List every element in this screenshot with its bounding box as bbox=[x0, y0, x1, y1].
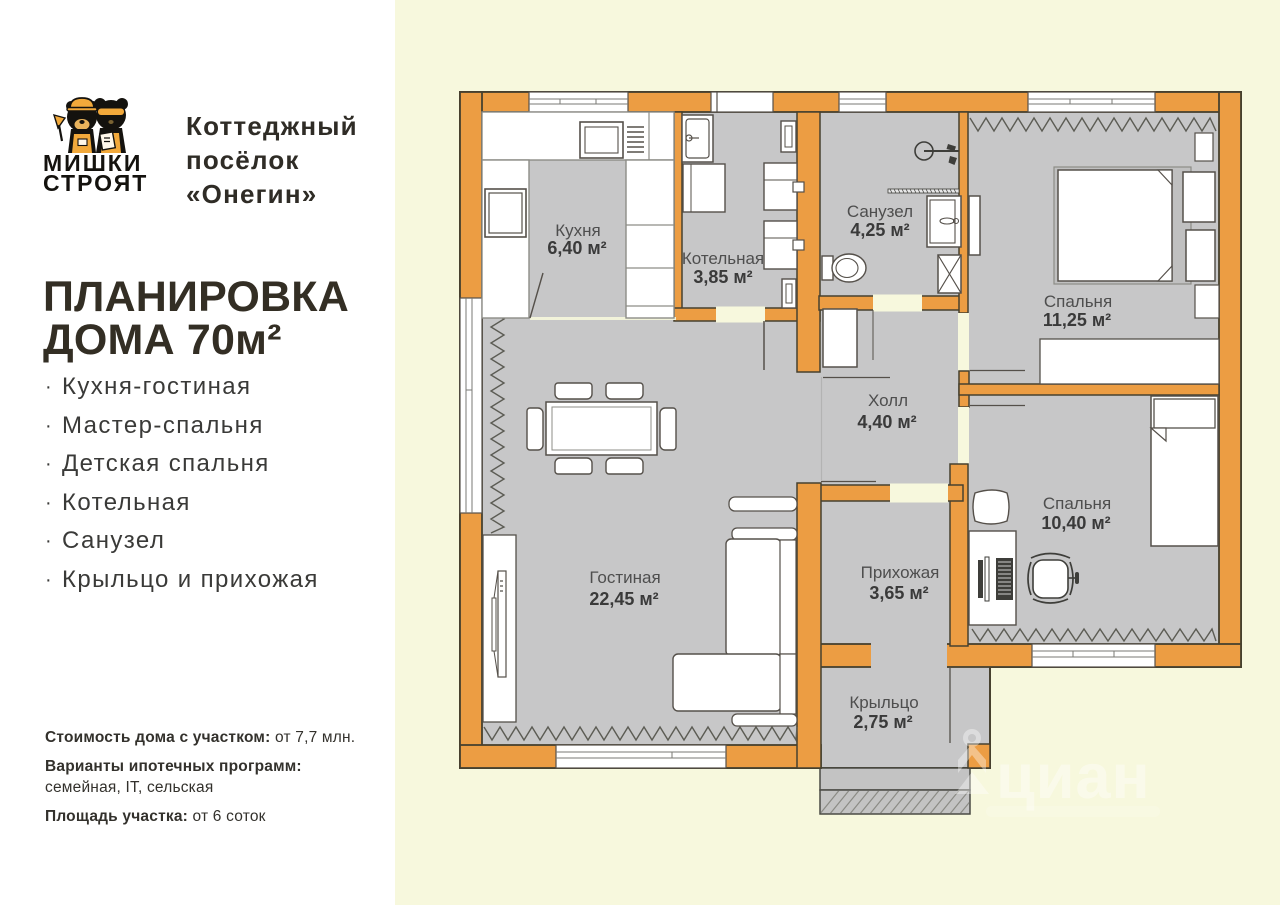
svg-text:3,85 м²: 3,85 м² bbox=[693, 267, 752, 287]
svg-text:6,40 м²: 6,40 м² bbox=[547, 238, 606, 258]
svg-text:3,65 м²: 3,65 м² bbox=[869, 583, 928, 603]
svg-text:Крыльцо: Крыльцо bbox=[849, 693, 918, 712]
svg-text:22,45 м²: 22,45 м² bbox=[589, 589, 658, 609]
svg-text:циан: циан bbox=[996, 742, 1151, 812]
svg-text:Спальня: Спальня bbox=[1043, 494, 1111, 513]
svg-text:Прихожая: Прихожая bbox=[861, 563, 940, 582]
svg-text:4,25 м²: 4,25 м² bbox=[850, 220, 909, 240]
svg-text:2,75 м²: 2,75 м² bbox=[853, 712, 912, 732]
svg-text:Холл: Холл bbox=[868, 391, 908, 410]
svg-text:Гостиная: Гостиная bbox=[589, 568, 660, 587]
svg-text:Санузел: Санузел bbox=[847, 202, 913, 221]
svg-text:11,25 м²: 11,25 м² bbox=[1043, 310, 1111, 330]
svg-text:Спальня: Спальня bbox=[1044, 292, 1112, 311]
svg-text:10,40 м²: 10,40 м² bbox=[1041, 513, 1110, 533]
svg-text:4,40 м²: 4,40 м² bbox=[857, 412, 916, 432]
svg-text:Котельная: Котельная bbox=[682, 249, 764, 268]
